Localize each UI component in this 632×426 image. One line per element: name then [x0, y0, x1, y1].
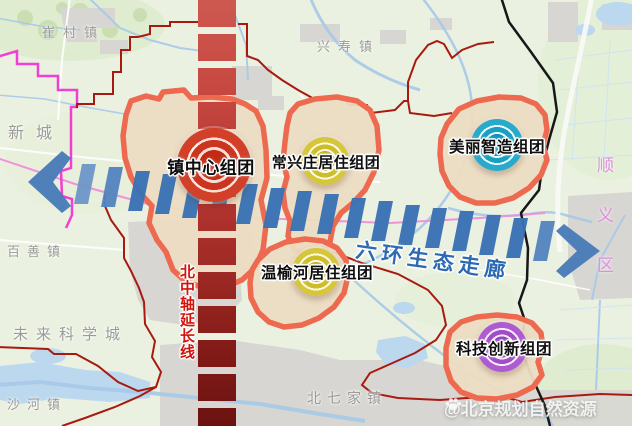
- watermark-text: @北京规划自然资源: [444, 395, 597, 420]
- eco-corridor-layer: [0, 0, 632, 426]
- changxingzhuang-label: 常兴庄居住组团: [272, 152, 381, 173]
- watermark: @北京规划自然资源: [444, 395, 597, 420]
- place-baishanzhen: 百善镇: [7, 241, 67, 260]
- north-axis-band: [198, 0, 236, 426]
- paw-icon: [444, 395, 462, 413]
- planning-map: 镇中心组团 常兴庄居住组团 美丽智造组团 温榆河居住组团 科技创新组团 北中轴延…: [0, 0, 632, 426]
- place-xingshouzhen: 兴寿镇: [317, 36, 380, 55]
- meili-zhizao-label: 美丽智造组团: [449, 135, 545, 157]
- town-center-label: 镇中心组团: [167, 154, 255, 179]
- place-shahezhen: 沙河镇: [7, 394, 67, 413]
- place-weilai-kexuecheng: 未来科学城: [13, 323, 128, 344]
- corridor-arrow-left: [28, 151, 71, 213]
- place-xincheng: 新城: [8, 119, 64, 143]
- place-cuicunzhen: 崔村镇: [42, 22, 105, 41]
- keji-chuangxin-label: 科技创新组团: [456, 337, 552, 359]
- north-axis-label: 北中轴延长线: [176, 264, 197, 360]
- place-beiqijiazhen: 北七家镇: [307, 388, 387, 408]
- place-shunyiqu: 顺义区: [591, 156, 616, 306]
